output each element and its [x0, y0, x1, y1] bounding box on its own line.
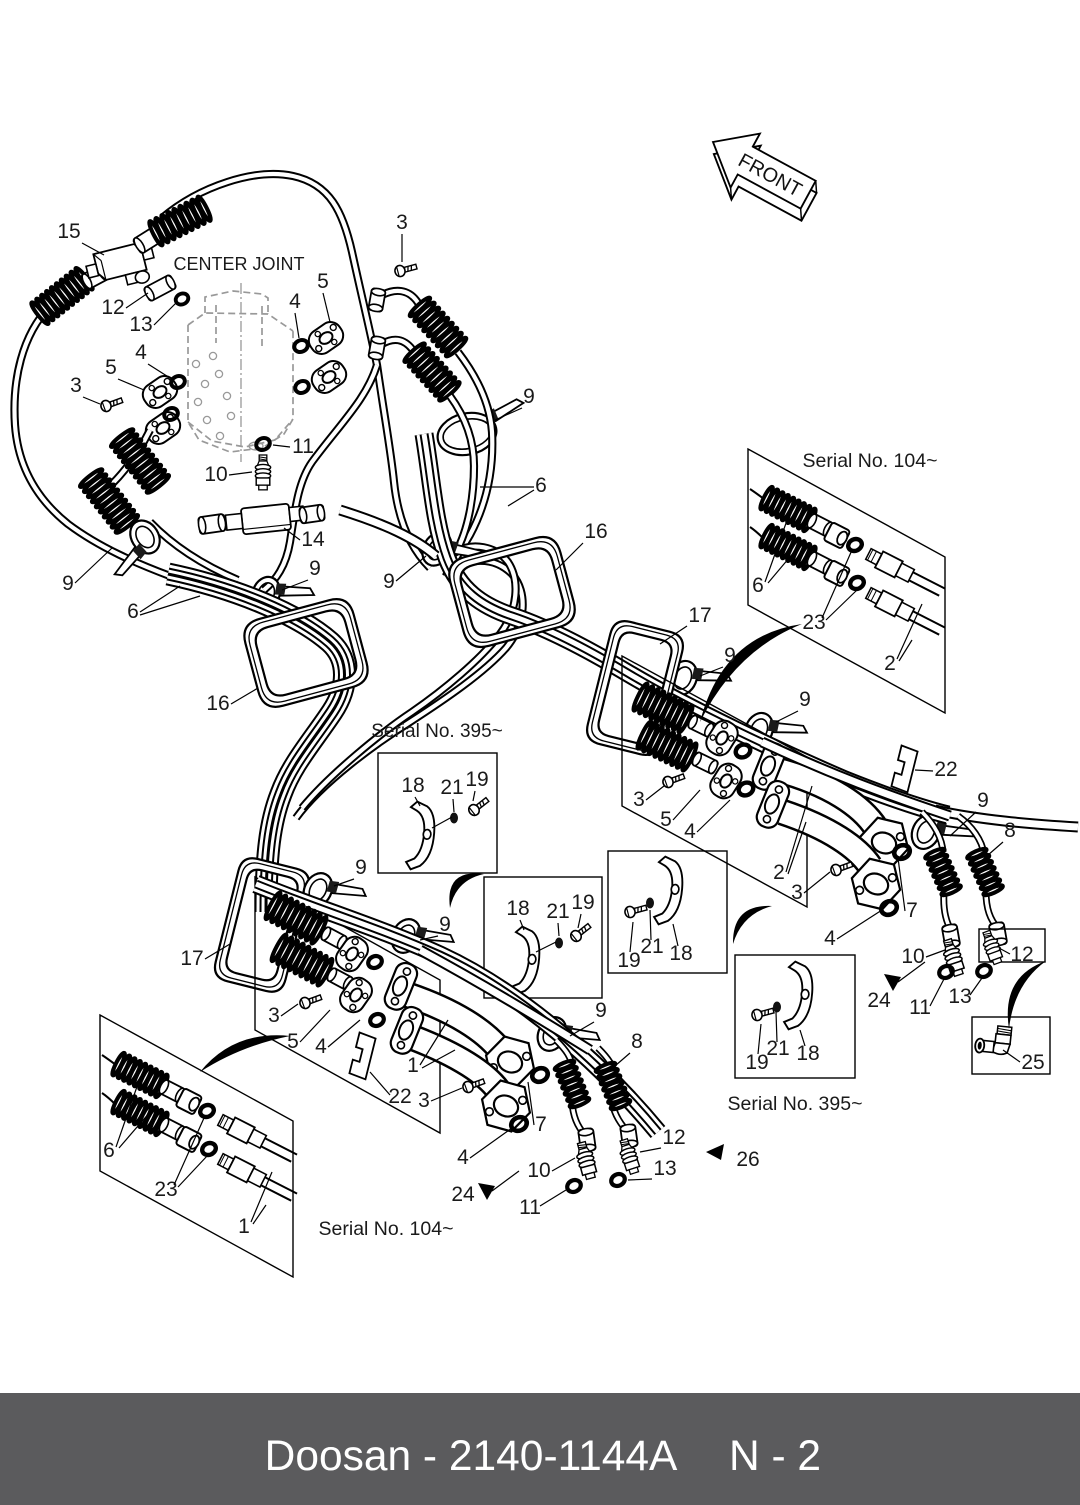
svg-text:19: 19 — [745, 1051, 768, 1074]
svg-text:3: 3 — [70, 374, 82, 397]
svg-text:5: 5 — [105, 356, 117, 379]
svg-text:18: 18 — [401, 774, 424, 797]
svg-text:10: 10 — [901, 945, 924, 968]
svg-text:9: 9 — [439, 913, 451, 936]
svg-text:2: 2 — [773, 861, 785, 884]
svg-text:12: 12 — [101, 296, 124, 319]
svg-text:13: 13 — [948, 985, 971, 1008]
svg-text:9: 9 — [309, 557, 321, 580]
svg-text:3: 3 — [268, 1004, 280, 1027]
svg-text:19: 19 — [465, 768, 488, 791]
svg-text:10: 10 — [204, 463, 227, 486]
svg-text:26: 26 — [736, 1148, 759, 1171]
svg-text:5: 5 — [317, 270, 329, 293]
svg-text:4: 4 — [824, 927, 836, 950]
svg-text:14: 14 — [301, 528, 325, 551]
svg-text:9: 9 — [523, 385, 535, 408]
svg-text:22: 22 — [388, 1085, 411, 1108]
svg-text:21: 21 — [640, 935, 663, 958]
svg-text:13: 13 — [653, 1157, 676, 1180]
svg-text:16: 16 — [584, 520, 607, 543]
svg-text:6: 6 — [535, 474, 547, 497]
svg-text:8: 8 — [1004, 819, 1016, 842]
svg-text:9: 9 — [62, 572, 74, 595]
svg-text:Doosan - 2140-1144A: Doosan - 2140-1144A — [265, 1433, 678, 1480]
svg-text:18: 18 — [506, 897, 529, 920]
svg-text:N - 2: N - 2 — [729, 1433, 821, 1480]
svg-text:4: 4 — [289, 290, 301, 313]
svg-text:10: 10 — [527, 1159, 550, 1182]
svg-text:11: 11 — [909, 996, 931, 1019]
svg-text:6: 6 — [127, 600, 139, 623]
svg-text:4: 4 — [684, 820, 696, 843]
svg-text:3: 3 — [791, 881, 803, 904]
svg-text:Serial No. 104~: Serial No. 104~ — [803, 450, 938, 472]
svg-text:4: 4 — [457, 1146, 469, 1169]
svg-text:16: 16 — [206, 692, 229, 715]
svg-text:9: 9 — [355, 856, 367, 879]
svg-text:9: 9 — [977, 789, 989, 812]
svg-text:12: 12 — [1010, 943, 1033, 966]
svg-text:19: 19 — [571, 891, 594, 914]
svg-text:6: 6 — [103, 1139, 115, 1162]
svg-text:3: 3 — [396, 211, 408, 234]
svg-text:15: 15 — [57, 220, 80, 243]
svg-text:9: 9 — [383, 570, 395, 593]
svg-text:17: 17 — [688, 604, 711, 627]
svg-text:6: 6 — [752, 574, 764, 597]
svg-text:4: 4 — [135, 341, 147, 364]
svg-text:25: 25 — [1021, 1051, 1044, 1074]
svg-text:Serial No. 395~: Serial No. 395~ — [728, 1093, 863, 1115]
svg-text:21: 21 — [546, 900, 569, 923]
svg-text:22: 22 — [934, 758, 957, 781]
svg-text:1: 1 — [238, 1215, 250, 1238]
svg-text:Serial No. 104~: Serial No. 104~ — [319, 1218, 454, 1240]
svg-text:CENTER JOINT: CENTER JOINT — [173, 254, 304, 274]
svg-text:18: 18 — [669, 942, 692, 965]
svg-text:8: 8 — [631, 1030, 643, 1053]
svg-text:21: 21 — [440, 776, 463, 799]
svg-text:24: 24 — [451, 1183, 475, 1206]
svg-text:5: 5 — [660, 808, 672, 831]
svg-text:21: 21 — [766, 1037, 789, 1060]
svg-text:Serial No. 395~: Serial No. 395~ — [371, 721, 503, 742]
svg-text:17: 17 — [180, 947, 203, 970]
svg-text:13: 13 — [129, 313, 152, 336]
svg-text:1: 1 — [407, 1054, 419, 1077]
svg-text:3: 3 — [418, 1089, 430, 1112]
svg-text:7: 7 — [906, 899, 918, 922]
svg-text:3: 3 — [633, 788, 645, 811]
svg-text:19: 19 — [617, 949, 640, 972]
svg-text:18: 18 — [796, 1042, 819, 1065]
svg-text:23: 23 — [802, 611, 825, 634]
svg-text:9: 9 — [724, 644, 736, 667]
svg-text:12: 12 — [662, 1126, 685, 1149]
svg-text:23: 23 — [154, 1178, 177, 1201]
svg-text:24: 24 — [867, 989, 891, 1012]
svg-text:11: 11 — [519, 1196, 541, 1219]
svg-text:4: 4 — [315, 1035, 327, 1058]
svg-text:5: 5 — [287, 1030, 299, 1053]
svg-text:7: 7 — [535, 1113, 547, 1136]
svg-text:9: 9 — [595, 999, 607, 1022]
svg-text:9: 9 — [799, 688, 811, 711]
svg-text:2: 2 — [884, 652, 896, 675]
svg-text:11: 11 — [292, 435, 314, 458]
